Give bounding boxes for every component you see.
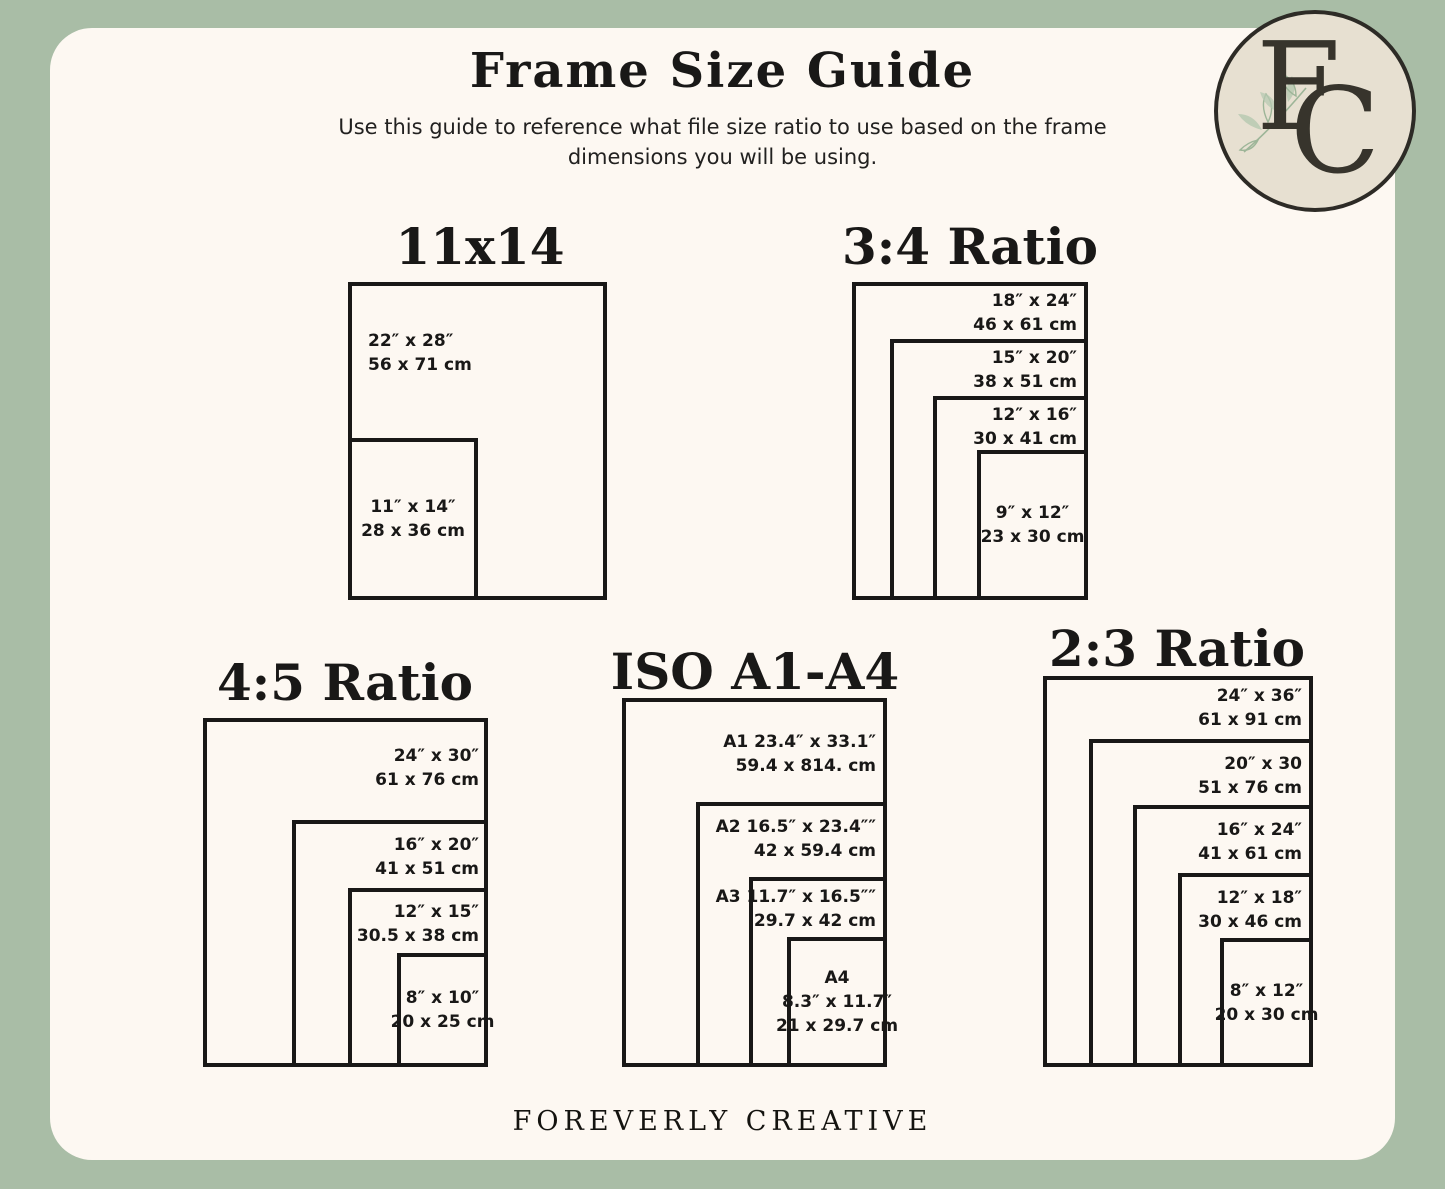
frame-label-3-4-ratio-3: 9″ x 12″23 x 30 cm: [981, 501, 1085, 549]
diagram-title-11x14: 11x14: [396, 219, 565, 275]
frame-size-guide-page: Frame Size Guide Use this guide to refer…: [0, 0, 1445, 1189]
frame-label-2-3-ratio-0: 24″ x 36″61 x 91 cm: [982, 684, 1302, 732]
frame-label-3-4-ratio-2: 12″ x 16″30 x 41 cm: [757, 403, 1077, 451]
diagram-title-4-5-ratio: 4:5 Ratio: [217, 655, 473, 711]
footer-brand: FOREVERLY CREATIVE: [0, 1106, 1445, 1137]
logo-letter-c: C: [1290, 72, 1380, 190]
frame-label-iso-a1-a4-1: A2 16.5″ x 23.4″″42 x 59.4 cm: [556, 815, 876, 863]
frame-label-2-3-ratio-2: 16″ x 24″41 x 61 cm: [982, 818, 1302, 866]
frame-label-iso-a1-a4-2: A3 11.7″ x 16.5″″29.7 x 42 cm: [556, 885, 876, 933]
frame-label-iso-a1-a4-0: A1 23.4″ x 33.1″59.4 x 814. cm: [556, 730, 876, 778]
frame-label-4-5-ratio-1: 16″ x 20″41 x 51 cm: [159, 833, 479, 881]
frame-label-4-5-ratio-2: 12″ x 15″30.5 x 38 cm: [159, 900, 479, 948]
frame-label-11x14-1: 11″ x 14″28 x 36 cm: [361, 495, 465, 543]
diagram-title-3-4-ratio: 3:4 Ratio: [842, 219, 1098, 275]
frame-label-3-4-ratio-1: 15″ x 20″38 x 51 cm: [757, 346, 1077, 394]
frame-label-iso-a1-a4-3: A48.3″ x 11.7″21 x 29.7 cm: [776, 966, 898, 1038]
frame-label-3-4-ratio-0: 18″ x 24″46 x 61 cm: [757, 289, 1077, 337]
frame-label-4-5-ratio-3: 8″ x 10″20 x 25 cm: [391, 986, 495, 1034]
frame-label-11x14-0: 22″ x 28″56 x 71 cm: [368, 329, 472, 377]
logo-badge: F C: [1214, 10, 1416, 212]
frame-label-2-3-ratio-3: 12″ x 18″30 x 46 cm: [982, 886, 1302, 934]
frame-label-2-3-ratio-1: 20″ x 3051 x 76 cm: [982, 752, 1302, 800]
frame-label-4-5-ratio-0: 24″ x 30″61 x 76 cm: [159, 744, 479, 792]
frame-label-2-3-ratio-4: 8″ x 12″20 x 30 cm: [1215, 979, 1319, 1027]
diagram-title-iso-a1-a4: ISO A1-A4: [611, 644, 899, 700]
diagram-title-2-3-ratio: 2:3 Ratio: [1049, 621, 1305, 677]
